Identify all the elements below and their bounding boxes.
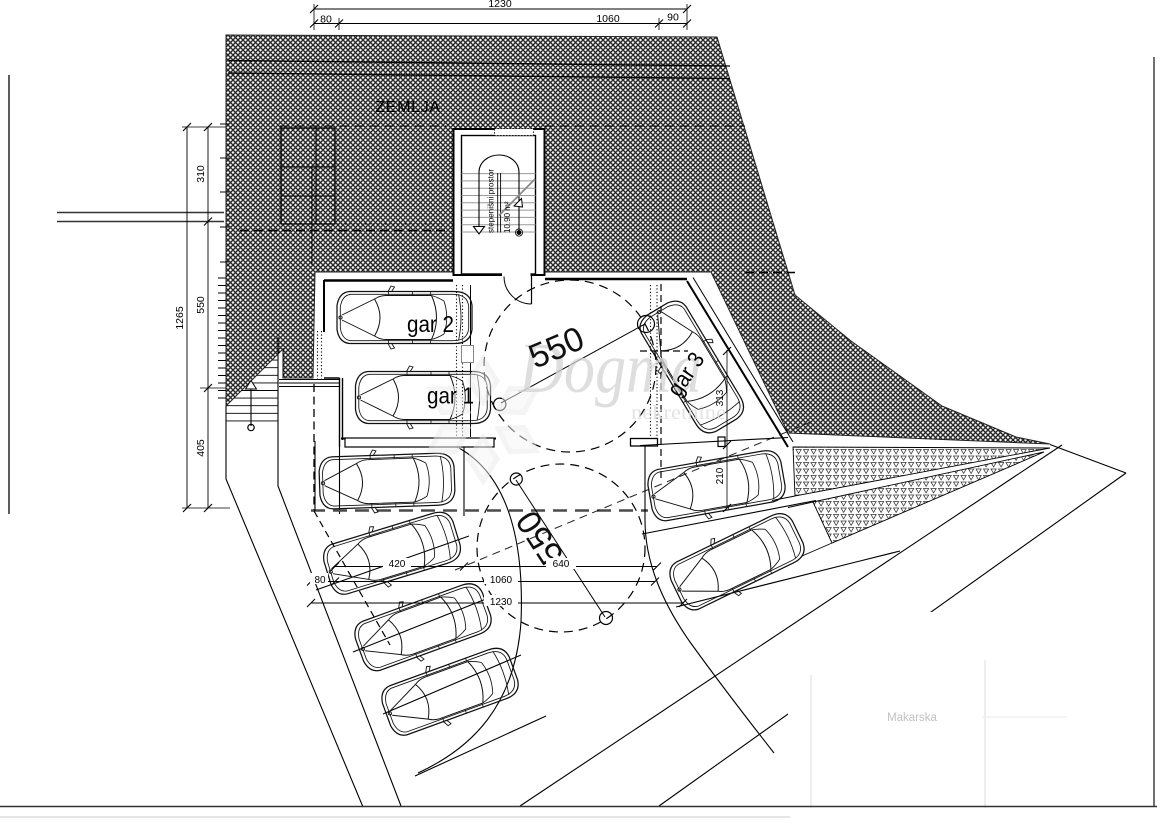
svg-text:stepenišni prostor: stepenišni prostor (487, 169, 496, 233)
svg-text:10.90 m²: 10.90 m² (503, 201, 512, 233)
svg-text:1060: 1060 (596, 13, 620, 25)
svg-text:Makarska: Makarska (887, 712, 937, 724)
svg-text:80: 80 (320, 14, 332, 26)
svg-text:80: 80 (314, 575, 326, 586)
svg-text:1230: 1230 (490, 597, 513, 608)
svg-text:210: 210 (715, 467, 726, 484)
svg-text:ZEMLJA: ZEMLJA (375, 99, 441, 116)
svg-text:310: 310 (195, 165, 207, 183)
svg-text:405: 405 (195, 439, 207, 457)
svg-text:90: 90 (667, 12, 679, 24)
svg-text:gar 2: gar 2 (407, 311, 454, 337)
svg-text:gar 1: gar 1 (427, 383, 474, 409)
svg-text:420: 420 (389, 559, 406, 570)
svg-text:1265: 1265 (174, 306, 186, 330)
svg-text:640: 640 (553, 559, 570, 570)
svg-text:313: 313 (715, 389, 726, 406)
svg-text:1060: 1060 (490, 575, 513, 586)
svg-text:550: 550 (195, 296, 207, 314)
svg-text:nekretnine: nekretnine (631, 402, 726, 424)
svg-text:1230: 1230 (488, 0, 512, 10)
